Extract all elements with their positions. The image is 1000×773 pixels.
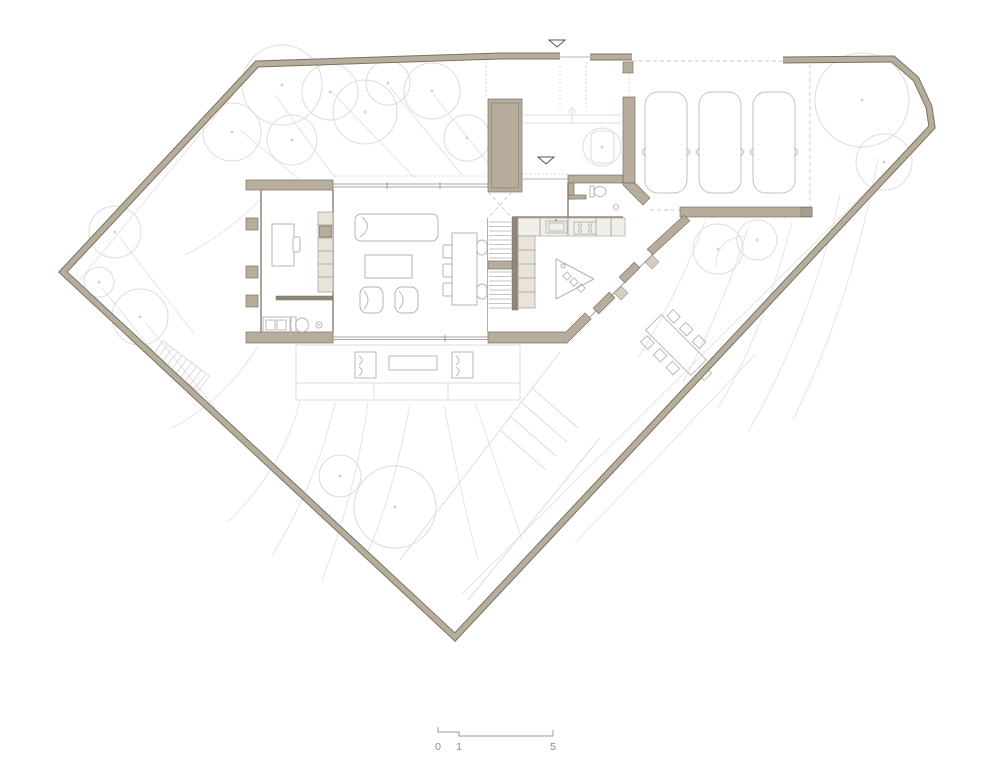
- angled-wall-segment: [619, 262, 640, 283]
- dining-chair: [443, 283, 452, 296]
- garden-wall: [680, 207, 812, 217]
- tree: [693, 224, 743, 274]
- wc-north-wall: [568, 175, 623, 183]
- scale-bar: 0 1 5: [435, 727, 556, 753]
- tree: [737, 220, 777, 260]
- pilaster: [246, 266, 258, 278]
- terrace-chair: [452, 352, 473, 378]
- dining-table: [452, 233, 477, 305]
- scale-label-5: 5: [550, 741, 556, 753]
- dining-chair: [477, 240, 487, 255]
- coffee-table: [365, 255, 412, 278]
- garden-wall-cap: [801, 208, 812, 217]
- dining-chair: [443, 245, 452, 258]
- terrace-chair: [355, 352, 376, 378]
- tree: [366, 61, 410, 105]
- staircase: [488, 192, 512, 308]
- study-north-wall: [246, 180, 333, 190]
- garage-wall-corner: [623, 183, 650, 205]
- wc-inner-wall: [568, 183, 586, 199]
- shower-drain: [316, 322, 322, 328]
- court-planter: [583, 128, 621, 166]
- tree: [404, 63, 460, 119]
- toilet: [291, 317, 309, 333]
- scale-label-0: 0: [435, 741, 441, 753]
- tree: [302, 64, 358, 120]
- garden-features: [152, 255, 725, 600]
- stair-landing-wall: [488, 261, 512, 269]
- study-room: [272, 212, 333, 292]
- kitchen-south-wall: [488, 313, 591, 343]
- armchair: [360, 287, 383, 313]
- entry-pier: [488, 99, 522, 192]
- tree: [444, 115, 490, 161]
- living-south-glass: [333, 337, 488, 340]
- terrace-outline: [296, 345, 520, 400]
- living-room: [355, 214, 438, 313]
- tree: [333, 80, 397, 144]
- south-terrace: [296, 345, 520, 400]
- floor-plan-page: 0 1 5: [0, 0, 1000, 773]
- pilaster: [246, 295, 258, 307]
- study-closet: [318, 212, 333, 292]
- desk: [272, 224, 300, 266]
- car: [750, 92, 798, 193]
- garage-west-wall: [623, 97, 635, 183]
- tree: [267, 115, 317, 165]
- tree: [815, 53, 909, 147]
- armchair: [395, 287, 418, 313]
- wall-notch: [623, 62, 633, 73]
- stair-east-wall: [512, 218, 518, 310]
- floor-plan-canvas: 0 1 5: [0, 0, 1000, 773]
- carport: [642, 92, 798, 193]
- triangle-table: [556, 259, 594, 299]
- interior-partitions: [261, 179, 623, 332]
- dining-chair: [477, 284, 487, 299]
- wc-fixtures: [590, 186, 619, 210]
- study-south-wall: [246, 332, 333, 343]
- bathroom: [263, 317, 322, 333]
- car: [642, 92, 690, 193]
- angled-wall-segment: [593, 292, 615, 314]
- sofa: [355, 214, 438, 241]
- bathroom-vanity: [263, 317, 290, 333]
- house-entry-marker: [538, 157, 554, 164]
- bathroom-partition: [276, 296, 333, 300]
- tree: [112, 289, 168, 345]
- kitchen-tall-cabinets: [518, 236, 535, 308]
- angled-wall-segment: [647, 215, 690, 255]
- street-gate-marker: [549, 40, 565, 47]
- stair-void-marking: [488, 192, 512, 218]
- kitchen-counter: [518, 218, 625, 236]
- living-north-glass: [333, 184, 488, 187]
- terrace-table: [389, 356, 437, 370]
- pilaster: [246, 218, 258, 230]
- scale-label-1: 1: [456, 741, 462, 753]
- outdoor-dining-set: [637, 306, 724, 393]
- car: [696, 92, 744, 193]
- tree: [354, 466, 436, 548]
- dining-chair: [443, 264, 452, 277]
